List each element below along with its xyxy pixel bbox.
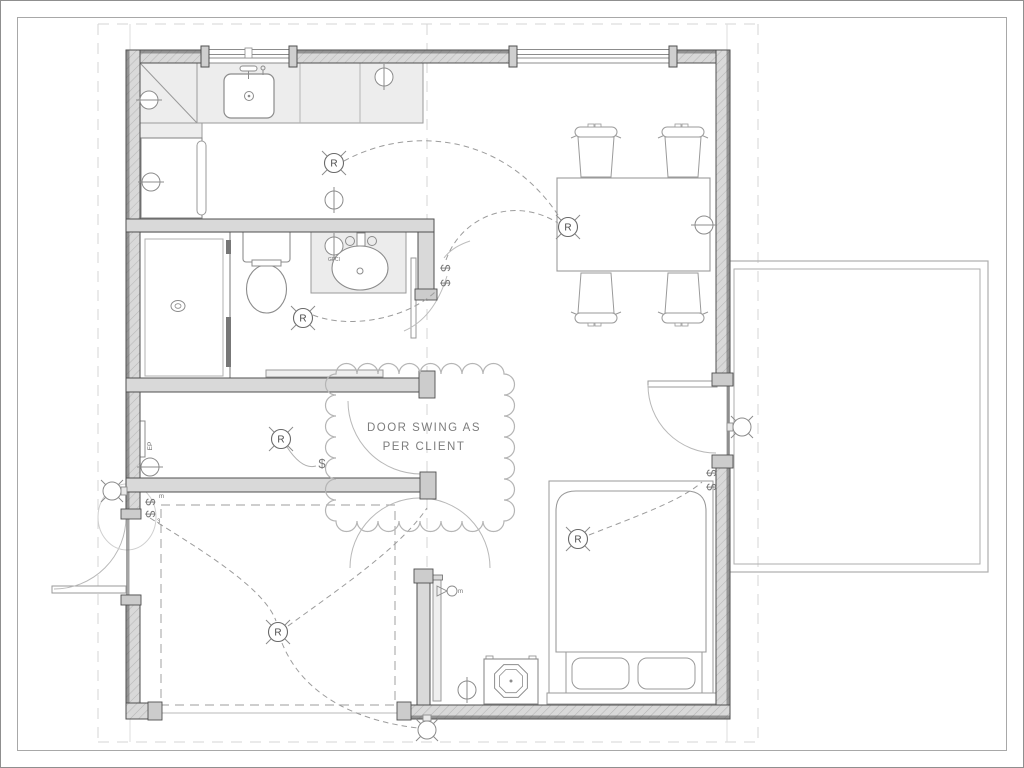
kitchen-sink [224, 66, 274, 118]
electrical-panel-label: EP [147, 442, 154, 451]
pillow [638, 658, 695, 689]
pillow [572, 658, 629, 689]
svg-text:R: R [330, 159, 337, 170]
headboard [547, 693, 717, 704]
wall-kitchen-bath [126, 219, 434, 232]
receptacle-symbol-bedroom: R [566, 527, 590, 551]
motion-marker: m [159, 494, 164, 500]
svg-text:R: R [299, 314, 306, 325]
svg-text:R: R [574, 535, 581, 546]
bathroom-vanity [311, 231, 406, 293]
switch-symbol-entry: $ [143, 510, 158, 518]
vanity-faucet-icon [357, 233, 365, 246]
wall-bath-hall [126, 378, 421, 392]
cloud-note-line2: PER CLIENT [383, 441, 466, 453]
mattress [556, 491, 706, 652]
receptacle-symbol-bathroom: R [291, 306, 315, 330]
shower-door-frame [226, 240, 231, 254]
switch-symbol-deck-door: $ [704, 483, 719, 491]
svg-text:R: R [277, 435, 284, 446]
wall-hall-garage [126, 478, 422, 492]
receptacle-symbol-hallway: R [269, 427, 293, 451]
wall-bedroom-west [417, 571, 430, 705]
kitchen-faucet-icon [240, 66, 257, 71]
svg-text:R: R [274, 628, 281, 639]
bed [547, 481, 717, 704]
shower [138, 232, 231, 383]
cloud-note-line1: DOOR SWING AS [367, 422, 481, 434]
receptacle-symbol-dining: R [556, 215, 580, 239]
switch-symbol-entry: $ [143, 498, 158, 506]
hvac-unit [484, 656, 538, 706]
receptacle-symbol-kitchen: R [322, 151, 346, 175]
floorplan-sheet: RRRRRR $$$$$$$ 3mm GFCI EP DOOR SWING AS… [0, 0, 1024, 768]
motion-marker: m [458, 589, 463, 595]
svg-text:R: R [564, 223, 571, 234]
switch-symbol-bathroom-door: $ [438, 264, 453, 272]
switch-symbol-bathroom-door: $ [438, 279, 453, 287]
gfci-label: GFCI [328, 257, 340, 263]
receptacle-symbol-garage: R [266, 620, 290, 644]
shower-door-frame [226, 317, 231, 367]
dining-table [557, 178, 710, 271]
switch-symbol-deck-door: $ [704, 469, 719, 477]
bathroom-sliding-door [266, 370, 383, 377]
